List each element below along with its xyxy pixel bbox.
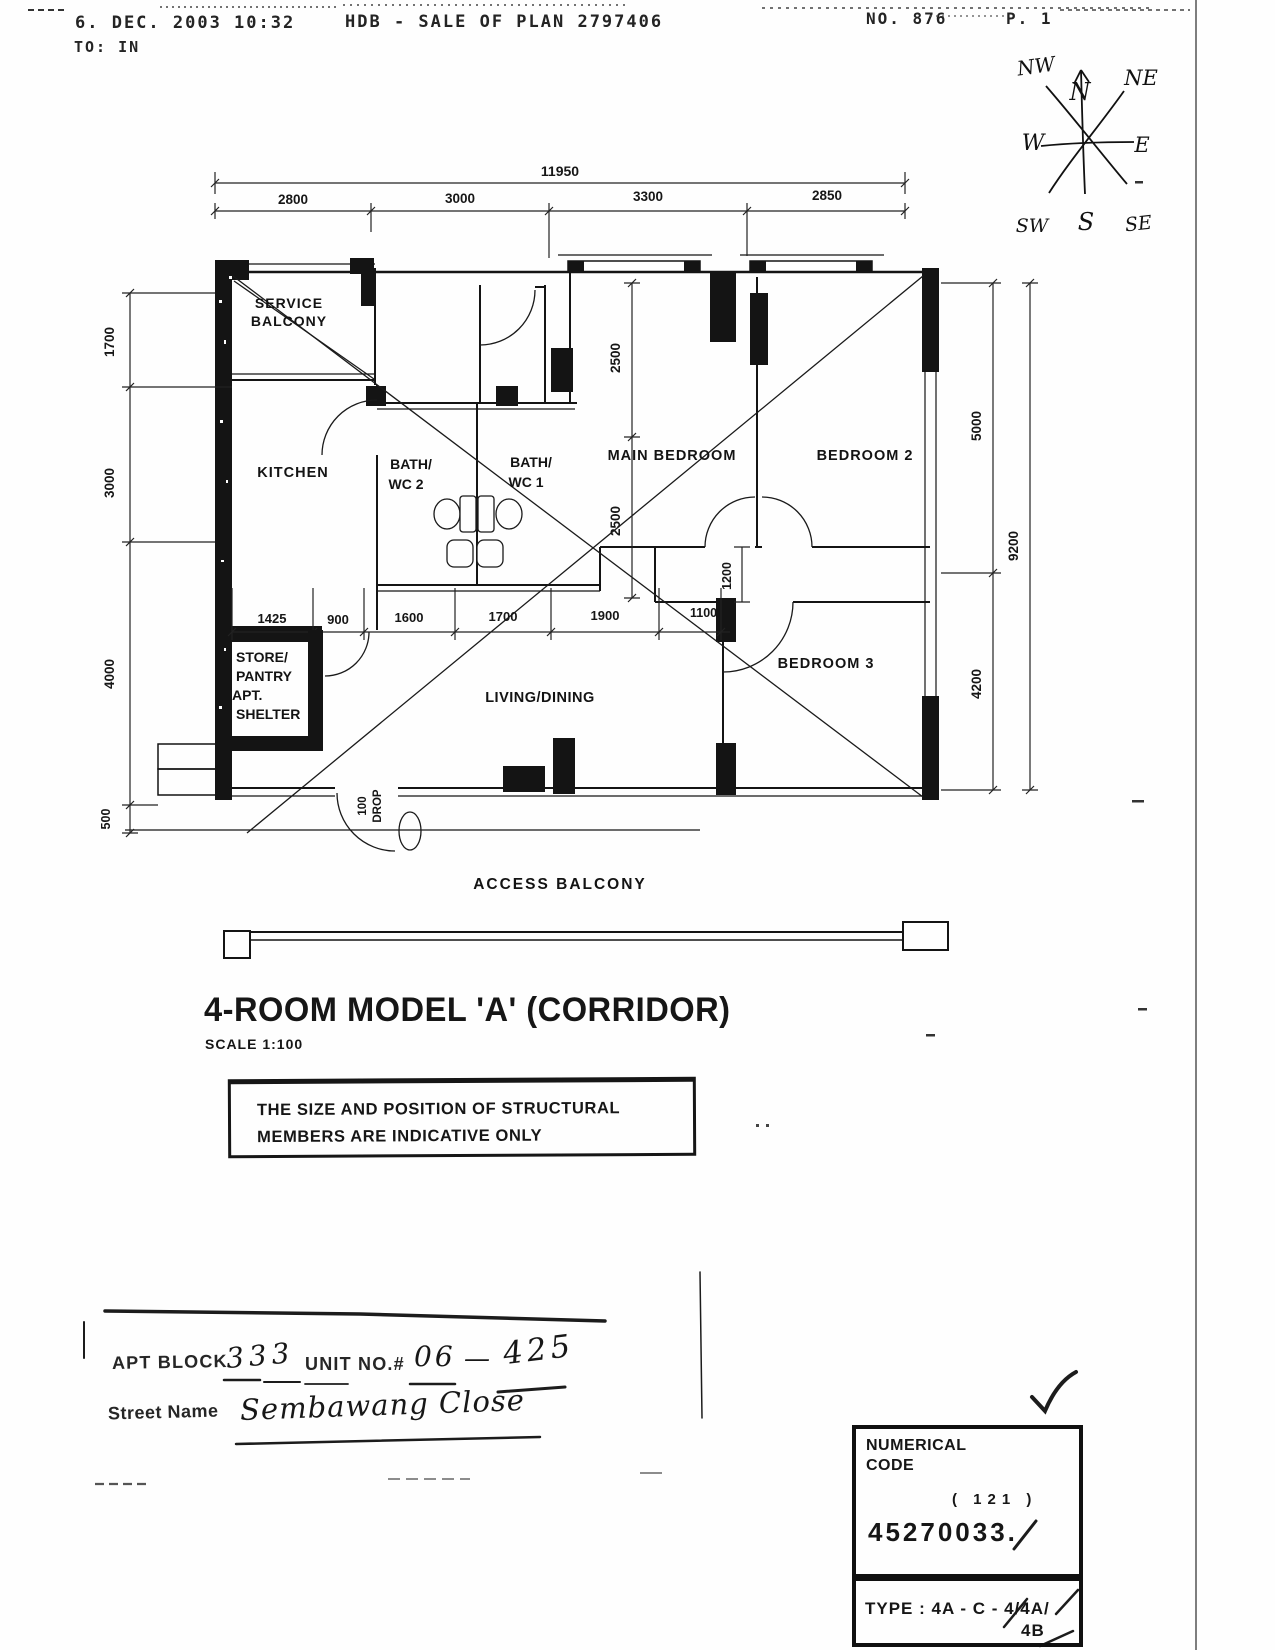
notice-line-2: MEMBERS ARE INDICATIVE ONLY <box>257 1122 693 1151</box>
wc1-bowl-icon <box>496 499 522 529</box>
lobby-door-arc <box>480 290 535 345</box>
apt-block-label: APT BLOCK <box>112 1351 228 1374</box>
room-main-bedroom: MAIN BEDROOM <box>608 448 737 464</box>
dim-mid-4: 1700 <box>489 609 518 624</box>
dim-top-1: 2800 <box>278 192 308 207</box>
room-store: PANTRY <box>236 668 293 684</box>
compass-labels: NW N NE W E SW S SE <box>1015 51 1158 237</box>
type-value: TYPE : 4A - C - 4/4A/ <box>865 1599 1050 1619</box>
dim-bedroom-depth-1: 2500 <box>608 343 623 373</box>
dim-top-3: 3300 <box>633 189 663 204</box>
type-value-2: 4B <box>1021 1621 1045 1641</box>
dim-top-2: 3000 <box>445 191 475 206</box>
apt-block-value: 333 <box>225 1336 296 1375</box>
unit-dash: — <box>464 1344 490 1374</box>
room-bath-wc2: BATH/ <box>390 456 432 472</box>
room-bath-wc2: WC 2 <box>389 476 424 492</box>
room-store: APT. <box>232 687 262 703</box>
room-store: SHELTER <box>236 706 300 722</box>
room-bath-wc1: BATH/ <box>510 454 552 470</box>
dim-mid-6: 1100 <box>690 606 717 620</box>
code-box-header: CODE <box>866 1456 914 1476</box>
room-bath-wc1: WC 1 <box>509 474 544 490</box>
compass-w: W <box>1022 131 1047 156</box>
window-bedroom2 <box>740 255 884 272</box>
room-kitchen: KITCHEN <box>257 465 328 481</box>
numerical-code-box: NUMERICAL CODE ( 121 ) 45270033. <box>852 1425 1083 1578</box>
basin-icon <box>447 540 473 567</box>
plan-walls <box>125 255 948 958</box>
kitchen-door-arc <box>322 400 377 455</box>
compass-sw: SW <box>1016 215 1050 237</box>
dim-right-2: 4200 <box>969 669 984 699</box>
street-name-label: Street Name <box>108 1401 219 1425</box>
main-bedroom-door-arc <box>705 497 755 547</box>
dim-right-1: 5000 <box>969 411 984 441</box>
checkmark-icon <box>1032 1372 1076 1411</box>
compass-n: N <box>1069 78 1092 106</box>
fax-page: 6. DEC. 2003 10:32 HDB - SALE OF PLAN 27… <box>0 0 1275 1650</box>
room-access-balcony: ACCESS BALCONY <box>473 876 647 893</box>
window-main-bedroom <box>558 255 712 272</box>
dim-top-4: 2850 <box>812 188 842 203</box>
notice-line-1: THE SIZE AND POSITION OF STRUCTURAL <box>257 1095 693 1124</box>
drop-note: DROP <box>372 789 384 823</box>
plan-title: 4-ROOM MODEL 'A' (CORRIDOR) <box>204 991 731 1030</box>
compass-nw: NW <box>1015 51 1058 80</box>
dim-left-2: 3000 <box>102 468 117 498</box>
dim-left-3: 4000 <box>102 659 117 689</box>
room-store: STORE/ <box>236 649 288 665</box>
compass-e: E <box>1133 133 1149 157</box>
dim-mid-2: 900 <box>327 612 349 627</box>
dim-left-1: 1700 <box>102 327 117 357</box>
numerical-code-value: 45270033. <box>868 1517 1018 1548</box>
plan-scale: SCALE 1:100 <box>205 1036 303 1052</box>
shelter-door-arc <box>325 632 369 676</box>
dim-bedroom-depth-2: 2500 <box>608 506 623 536</box>
compass-se: SE <box>1124 212 1153 237</box>
structural-notice-box: THE SIZE AND POSITION OF STRUCTURAL MEMB… <box>228 1077 696 1158</box>
basin-icon <box>477 540 503 567</box>
plan-diagonals <box>233 276 923 833</box>
dim-left-4: 500 <box>99 809 113 830</box>
entrance-door-leaf <box>399 812 421 850</box>
unit-no-value: 06 <box>414 1340 456 1373</box>
dim-overall-width: 11950 <box>541 163 579 179</box>
room-living-dining: LIVING/DINING <box>485 690 595 706</box>
room-service-balcony: BALCONY <box>251 313 327 329</box>
drop-note: 100 <box>357 796 369 815</box>
dim-mid-5: 1900 <box>591 608 620 623</box>
dim-mid-3: 1600 <box>395 610 424 625</box>
unit-no-label: UNIT NO.# <box>305 1354 405 1375</box>
dim-mid-1: 1425 <box>258 611 287 626</box>
code-box-header: NUMERICAL <box>866 1436 967 1456</box>
dim-overall-height: 9200 <box>1006 531 1021 561</box>
wc1-cistern-icon <box>478 496 494 532</box>
store-wall-overlap <box>308 630 323 744</box>
compass-s: S <box>1078 208 1094 236</box>
wc2-cistern-icon <box>460 496 476 532</box>
wc2-bowl-icon <box>434 499 460 529</box>
type-box: TYPE : 4A - C - 4/4A/ 4B <box>852 1578 1083 1647</box>
dim-corridor: 1200 <box>720 562 734 590</box>
code-paren: ( 121 ) <box>952 1491 1037 1508</box>
compass-ne: NE <box>1123 66 1158 90</box>
bedroom2-door-arc <box>762 497 812 547</box>
room-bedroom2: BEDROOM 2 <box>817 448 914 464</box>
room-bedroom3: BEDROOM 3 <box>778 656 875 672</box>
room-service-balcony: SERVICE <box>255 295 323 311</box>
